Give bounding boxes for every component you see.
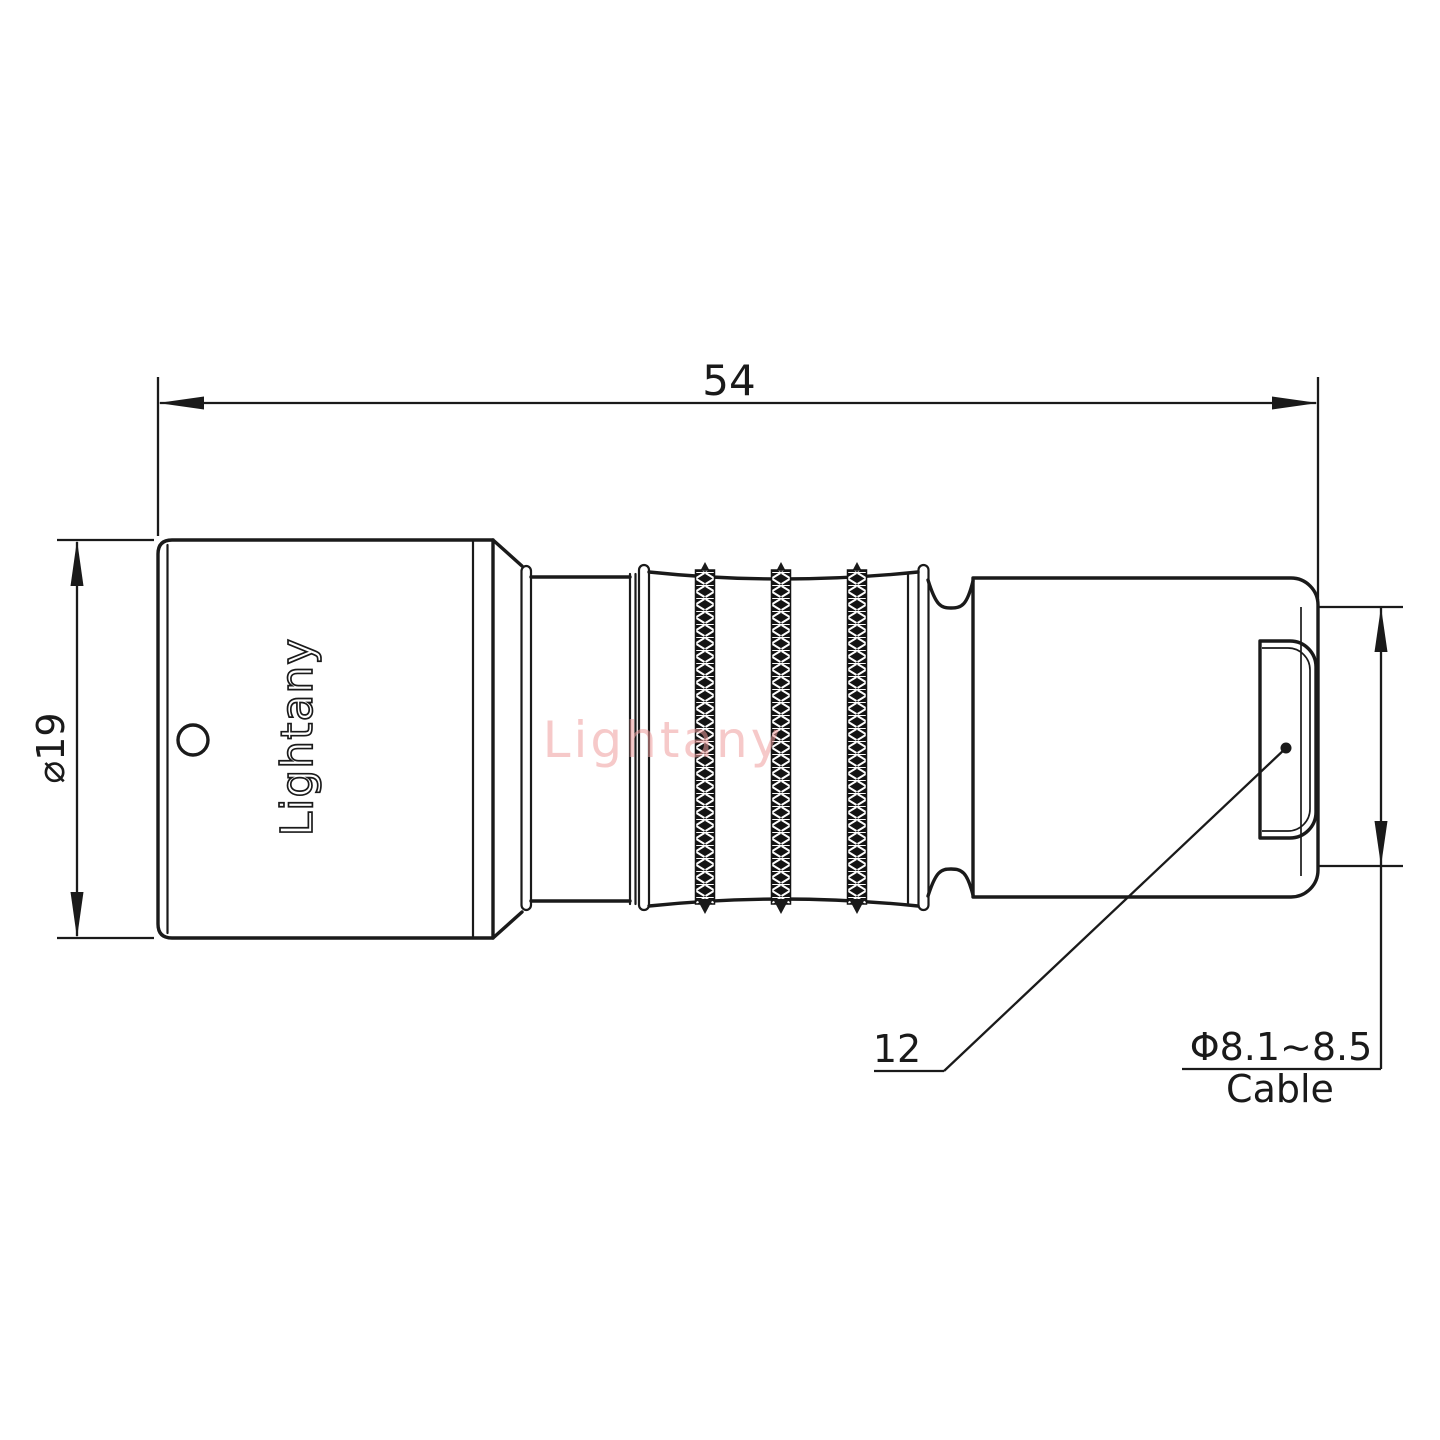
diameter-dim-label: ⌀19	[29, 712, 73, 783]
cable-arrowhead-bottom	[1375, 821, 1388, 866]
cable-diameter-label: Φ8.1~8.5	[1190, 1025, 1373, 1069]
dimension-overall-length: 54	[158, 356, 1318, 600]
vent-hole	[178, 725, 208, 755]
rear-face-leader-line	[944, 748, 1286, 1071]
cable-word-label: Cable	[1226, 1067, 1334, 1111]
taper-top-line	[493, 540, 522, 566]
knurl-band-3	[848, 562, 867, 914]
neck-bottom-edge	[928, 869, 973, 896]
leader-rear-face: 12	[873, 748, 1286, 1071]
technical-drawing-page: Lightany	[0, 0, 1440, 1440]
taper-section	[493, 540, 531, 938]
length-arrowhead-left	[158, 397, 204, 410]
diameter-arrowhead-bottom	[71, 892, 84, 938]
knurl-band-3-strip	[848, 570, 867, 904]
front-shell: Lightany	[158, 540, 493, 938]
cable-arrowhead-top	[1375, 607, 1388, 652]
knurl-band-3-bottom-tip	[849, 899, 865, 914]
length-dim-label: 54	[702, 356, 755, 405]
neck-top-edge	[928, 580, 973, 608]
length-arrowhead-right	[1272, 397, 1318, 410]
cable-bushing-inner	[1262, 648, 1310, 831]
neck-groove	[928, 580, 973, 896]
dimension-cable-diameter: Φ8.1~8.5 Cable	[1182, 607, 1388, 1111]
connector-technical-drawing: Lightany	[0, 0, 1440, 1440]
rear-shell	[973, 578, 1403, 897]
watermark-text: Lightany	[543, 711, 784, 769]
rear-shell-outline	[973, 578, 1318, 897]
flange-ring	[522, 566, 532, 910]
knurl-band-2-bottom-tip	[773, 899, 789, 914]
grip-right-end-ring	[919, 565, 929, 910]
knurl-band-1-bottom-tip	[697, 899, 713, 914]
brand-logo-text: Lightany	[272, 638, 323, 837]
dimension-body-diameter: ⌀19	[29, 540, 154, 938]
cable-bushing-outer	[1260, 641, 1316, 838]
rear-face-label: 12	[873, 1027, 921, 1071]
taper-bottom-line	[493, 912, 522, 938]
diameter-arrowhead-top	[71, 540, 84, 586]
